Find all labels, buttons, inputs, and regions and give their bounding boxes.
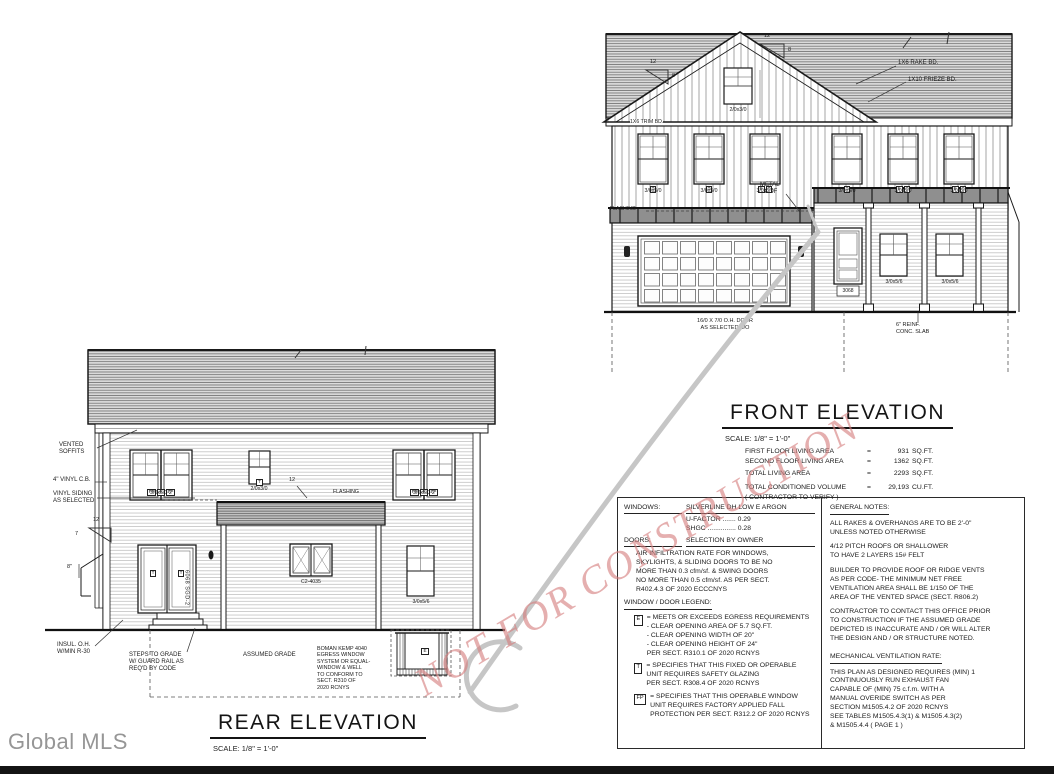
pitch-run: 12 [93, 517, 99, 523]
pitch-rise: 8 [788, 47, 791, 53]
trim-board-label: 1X6 TRIM BD. [630, 119, 663, 125]
windows-heading: WINDOWS: [624, 504, 682, 514]
window-size-label: 3/0x5/0-2 [130, 490, 192, 496]
general-note: BUILDER TO PROVIDE ROOF OR RIDGE VENTS A… [830, 567, 1016, 602]
rear-elevation-scale: SCALE: 1/8" = 1'-0" [213, 744, 278, 753]
window-size-label: 3/0x5/0 [692, 188, 726, 194]
gable-window-label: 2/0x3/0 [721, 107, 755, 113]
window-size-label: 3/0x5/6 [403, 599, 439, 605]
stat-row: FIRST FLOOR LIVING AREA=931SQ.FT. [745, 447, 933, 457]
sconce-icon [209, 551, 214, 560]
u-factor: U-FACTOR ....... 0.29 [686, 516, 815, 525]
siding-label: VINYL SIDING AS SELECTED [53, 491, 94, 505]
casement-window [290, 544, 332, 576]
general-note: 4/12 PITCH ROOFS OR SHALLOWER TO HAVE 2 … [830, 543, 1016, 561]
flashing-label: FLASHING [610, 206, 636, 212]
doors-heading: DOORS: [624, 537, 682, 547]
egress-note-label: BOMAN KEMP 4040 EGRESS WINDOW SYSTEM OR … [317, 646, 370, 691]
pitch-run: 12 [764, 33, 770, 39]
mechanical-ventilation-heading: MECHANICAL VENTILATION RATE: [830, 653, 942, 664]
shgc: SHGC ............... 0.28 [686, 525, 815, 534]
spec-column-left: WINDOWS: SILVERLINE DH LOW E ARGON U-FAC… [618, 498, 821, 748]
window-size-label: 3/0x5/0 [886, 188, 920, 194]
pitch-rise: 7 [75, 531, 78, 537]
rear-elevation-title: REAR ELEVATION [210, 711, 426, 739]
doors-value: SELECTION BY OWNER [686, 537, 815, 547]
assumed-grade-label: ASSUMED GRADE [243, 652, 296, 659]
spec-column-right: GENERAL NOTES: ALL RAKES & OVERHANGS ARE… [821, 498, 1024, 748]
window-size-label: 3/0x5/0-2 [393, 490, 455, 496]
insulation-label: INSUL. O.H. W/MIN R-30 [57, 642, 90, 656]
safety-glazing-marker: T [634, 663, 642, 674]
pitch-rise: 8 [672, 73, 675, 79]
window-size-label: 3/0x5/0 [942, 188, 976, 194]
windows-value: SILVERLINE DH LOW E ARGON [686, 504, 815, 514]
stats-note: ( CONTRACTOR TO VERIFY ) [745, 493, 933, 503]
dimension-label: 8" [67, 564, 72, 570]
sconce-icon [624, 246, 630, 257]
window-size-label: 3/0x5/6 [932, 279, 968, 285]
pitch-run: 12 [650, 59, 656, 65]
frieze-board-label: 1X10 FRIEZE BD. [908, 77, 957, 84]
entry-door [834, 228, 862, 284]
garage-metal-roof [610, 208, 812, 223]
steps [149, 613, 207, 630]
rear-elevation-drawing: VENTED SOFFITS 4" VINYL C.B. VINYL SIDIN… [45, 340, 510, 730]
egress-marker: E [634, 615, 643, 626]
general-note: CONTRACTOR TO CONTACT THIS OFFICE PRIOR … [830, 608, 1016, 643]
rear-elevation-linework [45, 340, 510, 730]
plan-sheet: 1X6 RAKE BD. 1X10 FRIEZE BD. 1X6 TRIM BD… [0, 0, 1054, 774]
casement-size-label: C2-4035 [290, 579, 332, 585]
door-size-label: 3068 [837, 288, 859, 294]
corner-board-label: 4" VINYL C.B. [53, 477, 91, 484]
window-size-label: 3/0x5/6 [876, 279, 912, 285]
pitch-run: 12 [289, 477, 295, 483]
rear-single-window [407, 546, 434, 596]
slider-size-label: 6068 SGD-2 [183, 570, 190, 606]
air-infiltration-note: AIR INFILTRATION RATE FOR WINDOWS, SKYLI… [636, 550, 815, 594]
soffits-label: VENTED SOFFITS [59, 442, 84, 456]
legend-item-fall-protection: FP = SPECIFIES THAT THIS OPERABLE WINDOW… [634, 693, 815, 719]
safety-glazing-marker: T [150, 570, 157, 578]
legend-item-tempered: T = SPECIFIES THAT THIS FIXED OR OPERABL… [634, 662, 815, 688]
window-size-label: 2/0x3/0 [239, 486, 279, 492]
doors-spec-row: DOORS: SELECTION BY OWNER [624, 537, 815, 547]
rake-board-label: 1X6 RAKE BD. [898, 60, 938, 67]
garage-door-label: 16/0 X 7/0 O.H. DOOR AS SELECTED B/O [660, 318, 790, 331]
fall-protection-marker: FP [634, 694, 646, 705]
stat-row: TOTAL CONDITIONED VOLUME=29,193CU.FT. [745, 483, 933, 493]
window-size-label: 3/0x5/0 [748, 188, 782, 194]
general-note: ALL RAKES & OVERHANGS ARE TO BE 2'-0" UN… [830, 520, 1016, 538]
window-ratings: U-FACTOR ....... 0.29 SHGC .............… [686, 516, 815, 534]
bottom-bar [0, 766, 1054, 774]
front-elevation-stats: FIRST FLOOR LIVING AREA=931SQ.FT. SECOND… [745, 447, 933, 503]
egress-marker: E [421, 648, 428, 656]
flashing-label: FLASHING [333, 489, 359, 495]
legend-item-egress: E = MEETS OR EXCEEDS EGRESS REQUIREMENTS… [634, 614, 815, 658]
rear-main-roof [88, 350, 495, 424]
mechanical-ventilation-note: THIS PLAN AS DESIGNED REQUIRES (MIN) 1 C… [830, 669, 1016, 731]
global-mls-logo: Global MLS [8, 729, 128, 755]
window-size-label: 3/0x5/0 [636, 188, 670, 194]
legend-heading: WINDOW / DOOR LEGEND: [624, 599, 712, 610]
front-elevation-drawing: 1X6 RAKE BD. 1X10 FRIEZE BD. 1X6 TRIM BD… [600, 22, 1020, 374]
slab-label: 6" REINF. CONC. SLAB [896, 322, 929, 335]
stat-row: SECOND FLOOR LIVING AREA=1362SQ.FT. [745, 457, 933, 467]
windows-spec-row: WINDOWS: SILVERLINE DH LOW E ARGON [624, 504, 815, 514]
window-size-label: 3/0x5/0 [830, 188, 864, 194]
front-elevation-scale: SCALE: 1/8" = 1'-0" [725, 434, 790, 443]
general-notes-heading: GENERAL NOTES: [830, 504, 889, 515]
front-elevation-title: FRONT ELEVATION [722, 401, 953, 429]
safety-glazing-marker: T [256, 479, 263, 487]
stat-row: TOTAL LIVING AREA=2293SQ.FT. [745, 469, 933, 479]
spec-notes-box: WINDOWS: SILVERLINE DH LOW E ARGON U-FAC… [617, 497, 1025, 749]
steps-label: STEPS TO GRADE W/ GUARD RAIL AS REQ'D BY… [129, 652, 184, 674]
sconce-icon [798, 246, 804, 257]
rear-shed-roof [217, 502, 385, 525]
